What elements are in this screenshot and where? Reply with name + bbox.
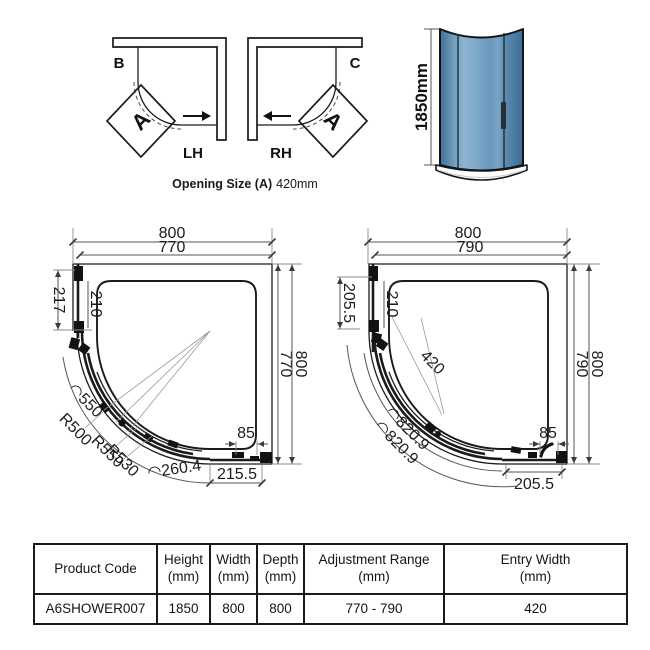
plan-drawing-790: 800 790 205.5 210 420 790 (330, 218, 625, 508)
corner-bracket (260, 452, 272, 463)
rh-label: RH (270, 145, 292, 162)
spec-table: Product Code Height (mm) Width (mm) Dept… (33, 543, 628, 625)
dim-left-outer: 205.5 (340, 283, 357, 323)
dim-arc-bottom: ◠260.4 (146, 457, 202, 481)
cell-entry-width: 420 (444, 594, 627, 624)
cell-adjustment-range: 770 - 790 (304, 594, 444, 624)
header-label: Height (158, 552, 209, 569)
opening-size-label: Opening Size (A) (172, 177, 272, 191)
opening-size-caption: Opening Size (A)420mm (100, 177, 390, 191)
dim-handle-offset: 85 (237, 425, 255, 442)
dim-entry-width: 420 (417, 347, 448, 378)
opening-size-value: 420mm (276, 177, 318, 191)
orientation-diagram: A B LH A C RH (85, 20, 385, 200)
height-label: 1850mm (412, 63, 431, 131)
header-label: Entry Width (445, 552, 626, 569)
header-unit: (mm) (258, 569, 303, 586)
dim-left-inner: 210 (383, 291, 400, 318)
header-unit: (mm) (158, 569, 209, 586)
header-label: Product Code (35, 561, 156, 578)
dim-right-outer: 800 (588, 351, 605, 378)
header-unit: (mm) (445, 569, 626, 586)
header-unit: (mm) (305, 569, 443, 586)
header-height: Height (mm) (157, 544, 210, 594)
spec-sheet: A B LH A C RH Opening Size (A)420 (0, 0, 650, 650)
dim-left-inner: 210 (87, 291, 104, 318)
lh-wall-label: B (114, 55, 125, 72)
dim-right-outer: 800 (292, 351, 309, 378)
header-width: Width (mm) (210, 544, 257, 594)
dim-bottom-segment: 205.5 (514, 476, 554, 493)
header-unit: (mm) (211, 569, 256, 586)
cell-height: 1850 (157, 594, 210, 624)
arrow-left-icon (263, 111, 291, 121)
header-product-code: Product Code (34, 544, 157, 594)
lh-opening-label: A (126, 106, 155, 135)
shower-glass (440, 29, 523, 171)
dim-top-inner: 770 (159, 239, 186, 256)
table-data-row: A6SHOWER007 1850 800 800 770 - 790 420 (34, 594, 627, 624)
dim-top-inner: 790 (457, 239, 484, 256)
shower-render: 1850mm (405, 15, 550, 190)
dim-right-inner: 790 (573, 351, 590, 378)
lh-diagram: A B LH (107, 38, 226, 162)
cell-product-code: A6SHOWER007 (34, 594, 157, 624)
rh-opening-label: A (319, 106, 348, 135)
table-header-row: Product Code Height (mm) Width (mm) Dept… (34, 544, 627, 594)
arrow-right-icon (183, 111, 211, 121)
rh-wall-label: C (350, 55, 361, 72)
height-dimension: 1850mm (412, 29, 439, 165)
cell-width: 800 (210, 594, 257, 624)
header-depth: Depth (mm) (257, 544, 304, 594)
lh-label: LH (183, 145, 203, 162)
cell-depth: 800 (257, 594, 304, 624)
dim-bottom-segment: 215.5 (217, 466, 257, 483)
plan-drawing-770: 800 770 217 210 770 800 (30, 218, 320, 508)
header-adjustment-range: Adjustment Range (mm) (304, 544, 444, 594)
door-handle (501, 102, 506, 129)
header-entry-width: Entry Width (mm) (444, 544, 627, 594)
dim-handle-offset: 85 (539, 425, 557, 442)
rh-diagram: A C RH (248, 38, 367, 162)
header-label: Depth (258, 552, 303, 569)
dim-right-inner: 770 (277, 351, 294, 378)
dim-left-outer: 217 (50, 287, 67, 314)
header-label: Adjustment Range (305, 552, 443, 569)
header-label: Width (211, 552, 256, 569)
